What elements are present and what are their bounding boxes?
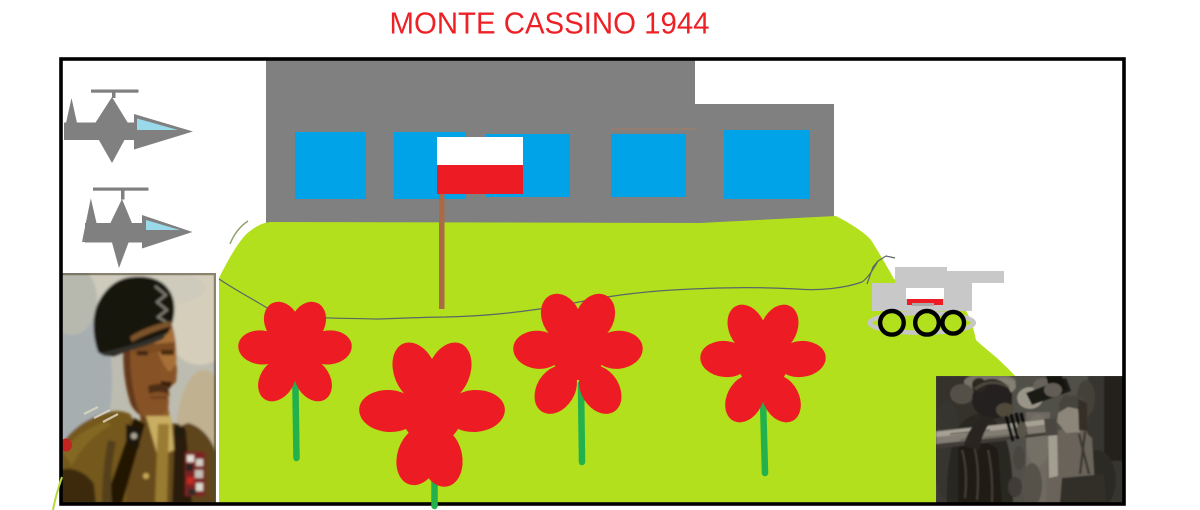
svg-text:MONTE CASSINO 1944: MONTE CASSINO 1944: [390, 6, 710, 40]
